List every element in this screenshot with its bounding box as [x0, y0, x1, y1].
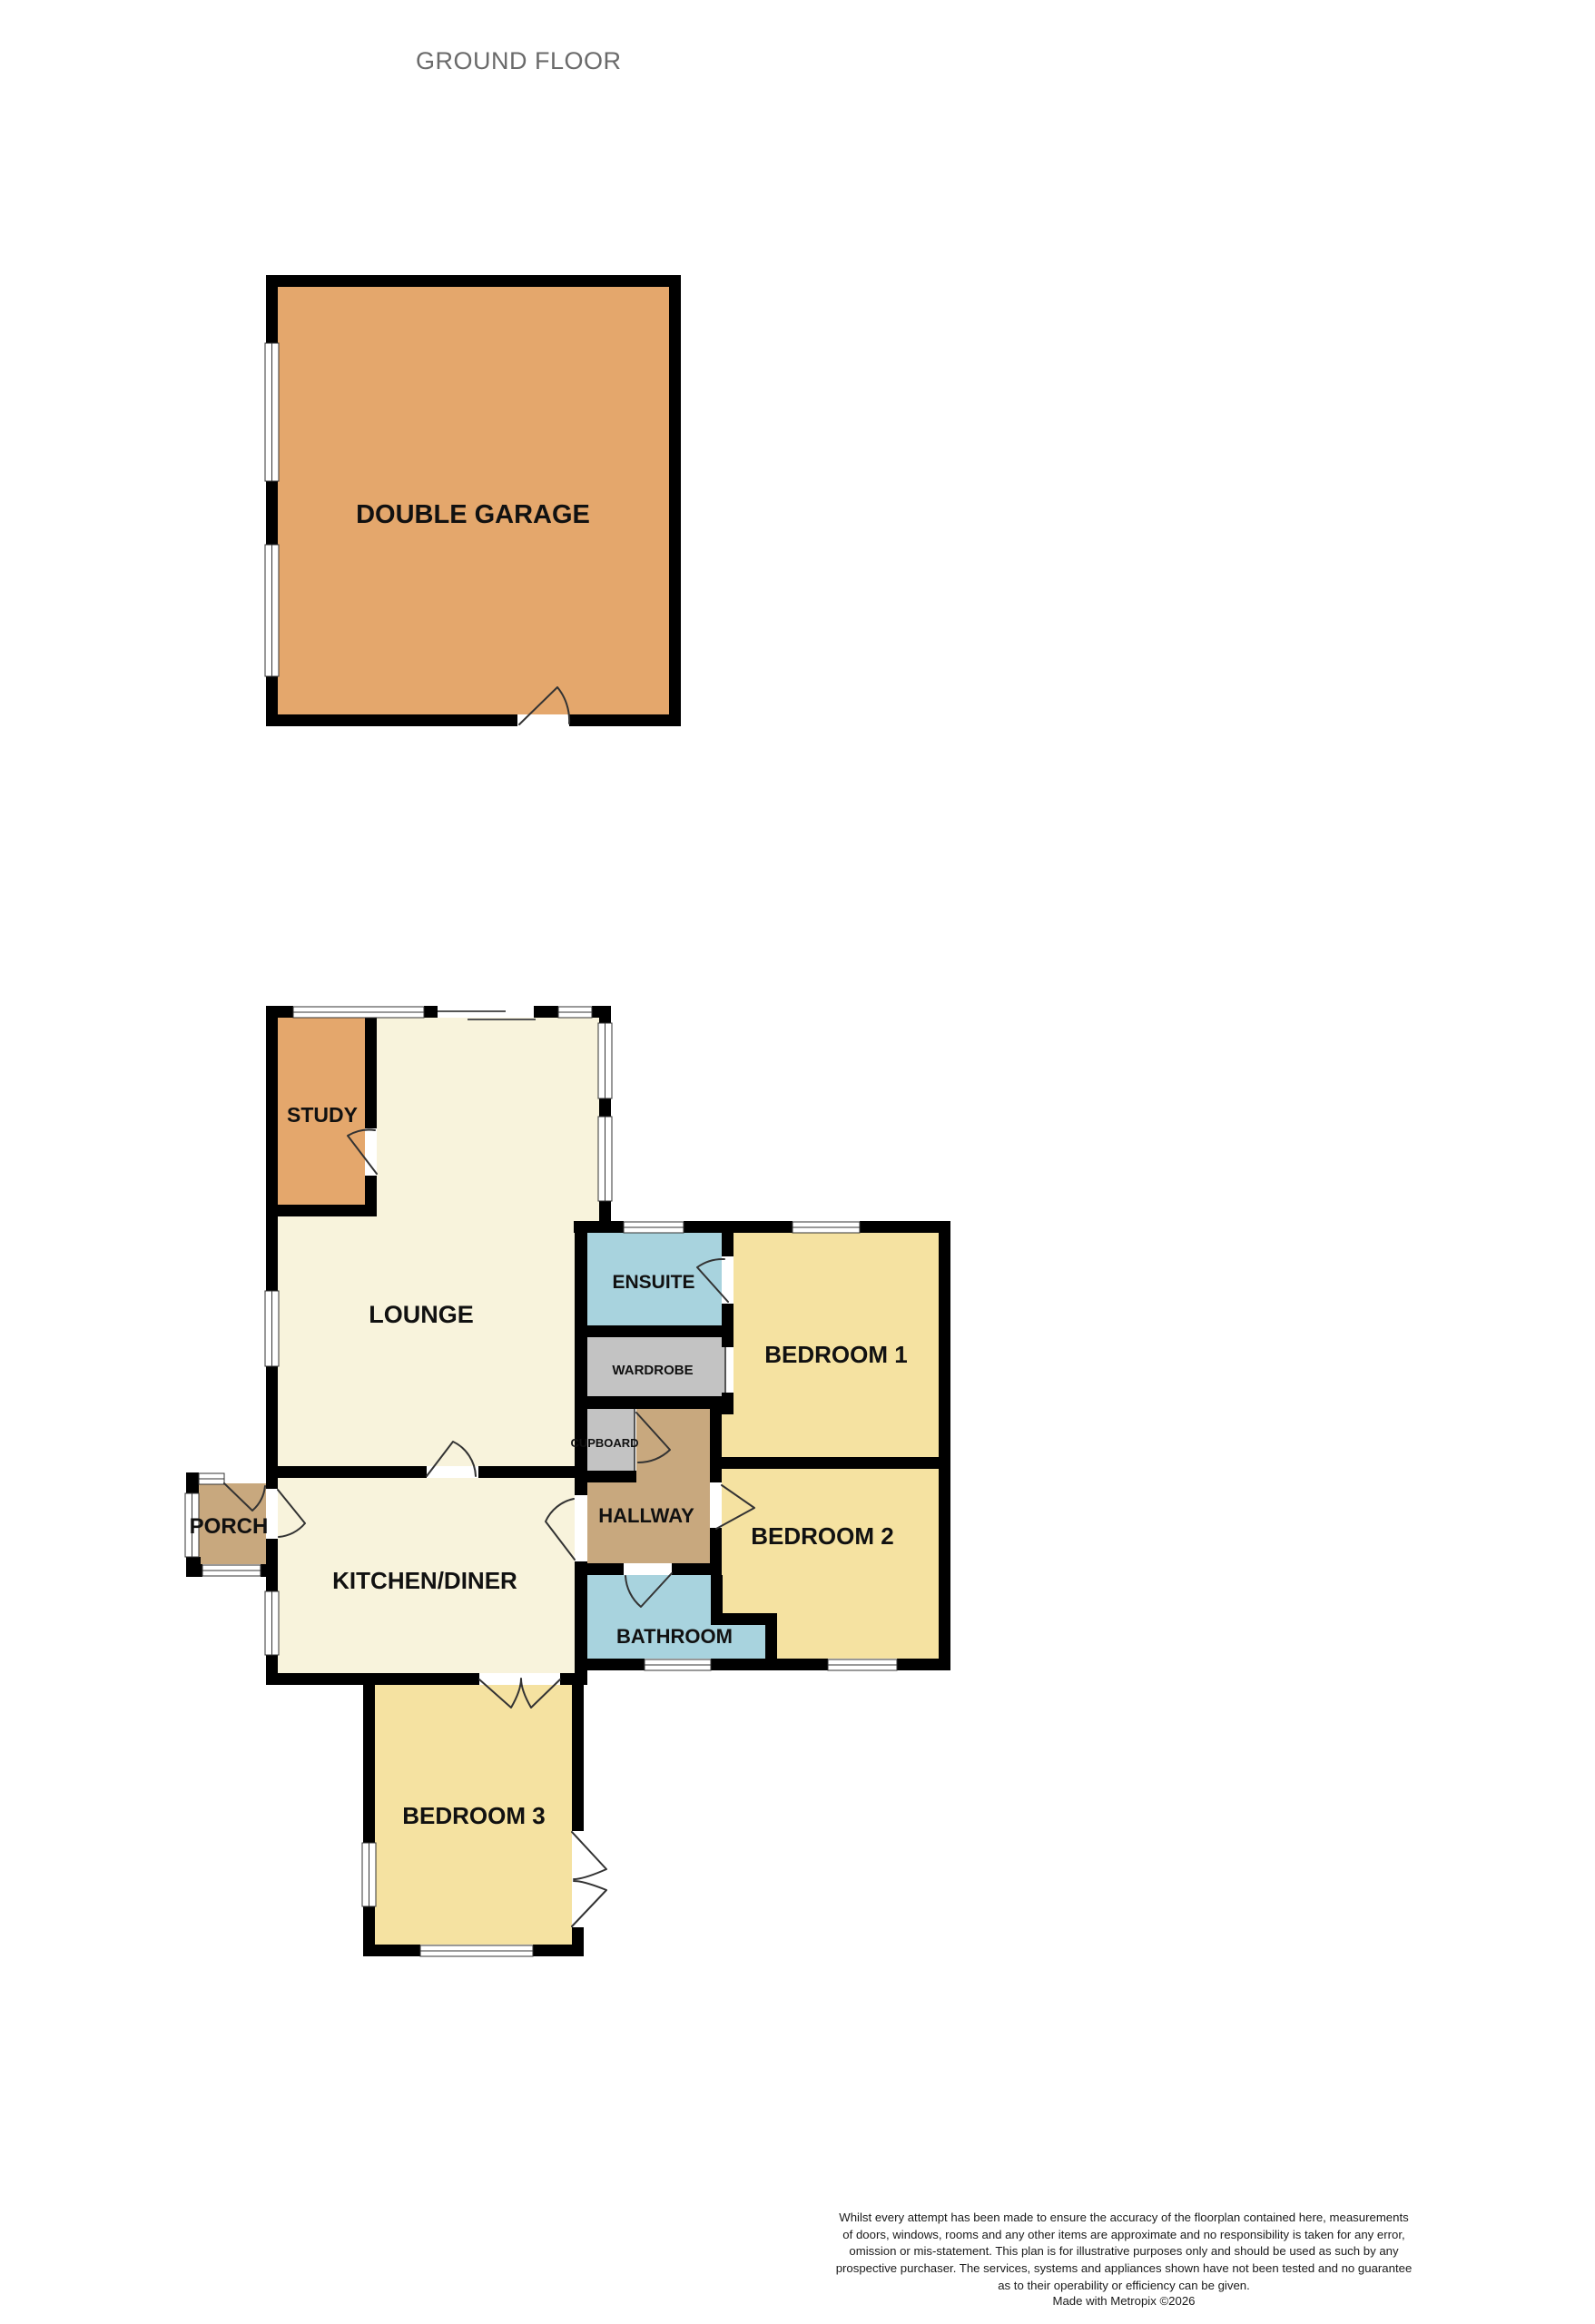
label-hallway: HALLWAY	[598, 1504, 694, 1527]
window	[645, 1659, 711, 1670]
window	[793, 1222, 860, 1233]
label-double-garage: DOUBLE GARAGE	[356, 500, 590, 529]
window	[624, 1222, 684, 1233]
label-lounge: LOUNGE	[369, 1301, 474, 1328]
label-kitchen-diner: KITCHEN/DINER	[332, 1567, 517, 1594]
label-porch: PORCH	[190, 1514, 269, 1539]
label-study: STUDY	[287, 1103, 358, 1127]
label-bedroom-3: BEDROOM 3	[402, 1802, 545, 1829]
window	[265, 1291, 279, 1366]
label-bathroom: BATHROOM	[616, 1625, 733, 1648]
disclaimer-text: Whilst every attempt has been made to en…	[715, 2210, 1532, 2295]
window	[202, 1565, 261, 1576]
window	[420, 1945, 533, 1956]
window	[265, 343, 279, 481]
window	[362, 1843, 376, 1906]
label-bedroom-1: BEDROOM 1	[764, 1341, 907, 1368]
label-wardrobe: WARDROBE	[612, 1363, 693, 1378]
window	[293, 1007, 424, 1018]
credit-text: Made with Metropix ©2026	[715, 2294, 1532, 2308]
window	[558, 1007, 592, 1018]
window	[598, 1117, 612, 1201]
window	[265, 1591, 279, 1655]
window	[598, 1023, 612, 1098]
floorplan-drawing: DOUBLE GARAGE STUDY LOUNGE ENSUITE WARDR…	[0, 0, 1595, 2324]
label-cupboard: CUPBOARD	[570, 1436, 638, 1450]
label-bedroom-2: BEDROOM 2	[751, 1522, 893, 1550]
window	[828, 1659, 897, 1670]
bedroom3-french-doors	[572, 1832, 606, 1926]
window	[199, 1473, 224, 1484]
label-ensuite: ENSUITE	[612, 1272, 694, 1293]
window	[265, 545, 279, 676]
